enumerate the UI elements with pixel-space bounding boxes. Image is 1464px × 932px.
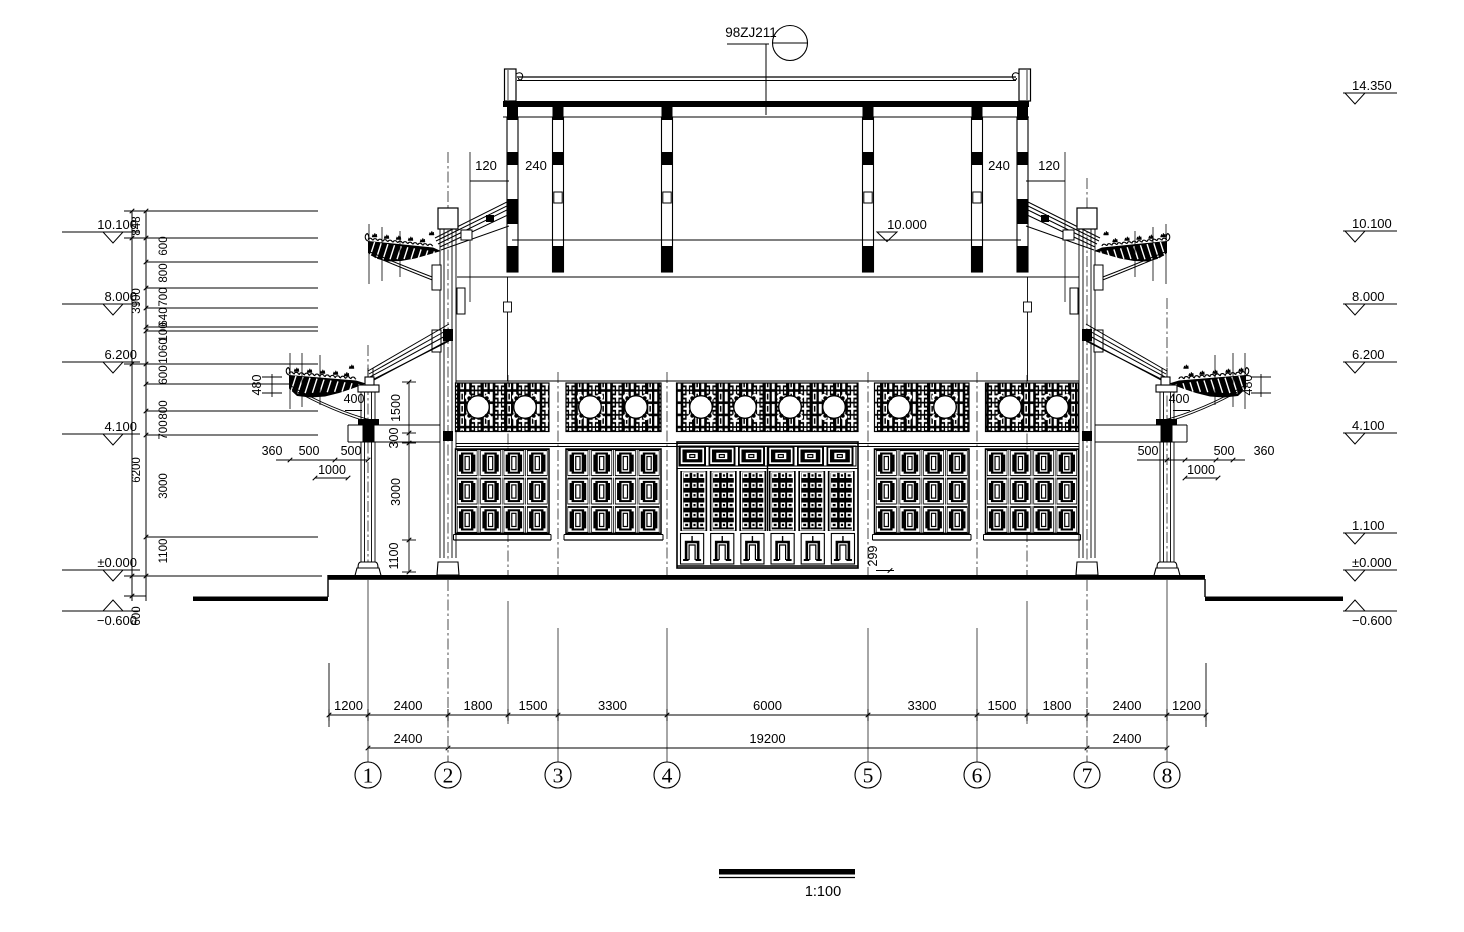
svg-text:2400: 2400 bbox=[1113, 698, 1142, 713]
svg-text:500: 500 bbox=[1138, 444, 1159, 458]
svg-text:480: 480 bbox=[1241, 375, 1255, 396]
svg-text:6: 6 bbox=[972, 764, 983, 788]
svg-text:1800: 1800 bbox=[464, 698, 493, 713]
svg-text:400: 400 bbox=[1169, 392, 1190, 406]
svg-text:500: 500 bbox=[299, 444, 320, 458]
svg-text:6200: 6200 bbox=[131, 457, 143, 483]
svg-text:2400: 2400 bbox=[1113, 731, 1142, 746]
svg-text:1.100: 1.100 bbox=[1352, 518, 1385, 533]
svg-text:2400: 2400 bbox=[394, 731, 423, 746]
svg-text:3300: 3300 bbox=[908, 698, 937, 713]
svg-text:600: 600 bbox=[158, 236, 170, 255]
svg-text:1200: 1200 bbox=[1172, 698, 1201, 713]
svg-text:−0.600: −0.600 bbox=[97, 613, 137, 628]
svg-text:3000: 3000 bbox=[158, 473, 170, 499]
svg-text:1: 1 bbox=[363, 764, 374, 788]
svg-text:1500: 1500 bbox=[389, 394, 403, 422]
svg-text:7: 7 bbox=[1082, 764, 1093, 788]
svg-text:2: 2 bbox=[443, 764, 454, 788]
svg-text:6000: 6000 bbox=[753, 698, 782, 713]
svg-text:5: 5 bbox=[863, 764, 874, 788]
svg-text:14.350: 14.350 bbox=[1352, 78, 1392, 93]
svg-text:600: 600 bbox=[158, 365, 170, 384]
svg-text:1800: 1800 bbox=[1043, 698, 1072, 713]
svg-text:3000: 3000 bbox=[389, 478, 403, 506]
svg-text:1:100: 1:100 bbox=[805, 884, 841, 900]
svg-text:400: 400 bbox=[344, 392, 365, 406]
svg-text:700: 700 bbox=[158, 420, 170, 439]
svg-text:4.100: 4.100 bbox=[1352, 418, 1385, 433]
svg-text:120: 120 bbox=[475, 158, 497, 173]
svg-text:1100: 1100 bbox=[387, 543, 401, 570]
svg-text:3: 3 bbox=[553, 764, 564, 788]
svg-text:1500: 1500 bbox=[519, 698, 548, 713]
svg-text:8.000: 8.000 bbox=[1352, 289, 1385, 304]
svg-text:10.100: 10.100 bbox=[1352, 216, 1392, 231]
svg-text:1100: 1100 bbox=[158, 539, 170, 564]
svg-text:19200: 19200 bbox=[749, 731, 785, 746]
svg-text:±0.000: ±0.000 bbox=[97, 555, 137, 570]
svg-text:8.000: 8.000 bbox=[104, 289, 137, 304]
svg-text:−0.600: −0.600 bbox=[1352, 613, 1392, 628]
svg-text:800: 800 bbox=[158, 400, 170, 419]
svg-text:3300: 3300 bbox=[598, 698, 627, 713]
svg-text:10.100: 10.100 bbox=[97, 217, 137, 232]
svg-text:6.200: 6.200 bbox=[104, 347, 137, 362]
svg-text:1500: 1500 bbox=[988, 698, 1017, 713]
svg-text:1000: 1000 bbox=[1187, 463, 1215, 477]
svg-text:2400: 2400 bbox=[394, 698, 423, 713]
svg-text:±0.000: ±0.000 bbox=[1352, 555, 1392, 570]
svg-text:4.100: 4.100 bbox=[104, 419, 137, 434]
svg-text:500: 500 bbox=[1214, 444, 1235, 458]
svg-text:6.200: 6.200 bbox=[1352, 347, 1385, 362]
svg-text:98ZJ211: 98ZJ211 bbox=[725, 25, 777, 40]
svg-text:120: 120 bbox=[1038, 158, 1060, 173]
svg-text:8: 8 bbox=[1162, 764, 1173, 788]
svg-text:800: 800 bbox=[158, 263, 170, 282]
svg-text:700: 700 bbox=[158, 287, 170, 306]
svg-text:480: 480 bbox=[250, 375, 264, 396]
svg-text:1200: 1200 bbox=[334, 698, 363, 713]
svg-text:10.000: 10.000 bbox=[887, 217, 927, 232]
svg-text:1060: 1060 bbox=[158, 338, 170, 364]
svg-text:299: 299 bbox=[866, 546, 880, 567]
svg-text:360: 360 bbox=[262, 444, 283, 458]
svg-text:4: 4 bbox=[662, 764, 673, 788]
svg-text:240: 240 bbox=[525, 158, 547, 173]
svg-text:240: 240 bbox=[988, 158, 1010, 173]
svg-text:1000: 1000 bbox=[318, 463, 346, 477]
svg-text:300: 300 bbox=[387, 428, 401, 449]
svg-text:360: 360 bbox=[1254, 444, 1275, 458]
svg-text:500: 500 bbox=[341, 444, 362, 458]
